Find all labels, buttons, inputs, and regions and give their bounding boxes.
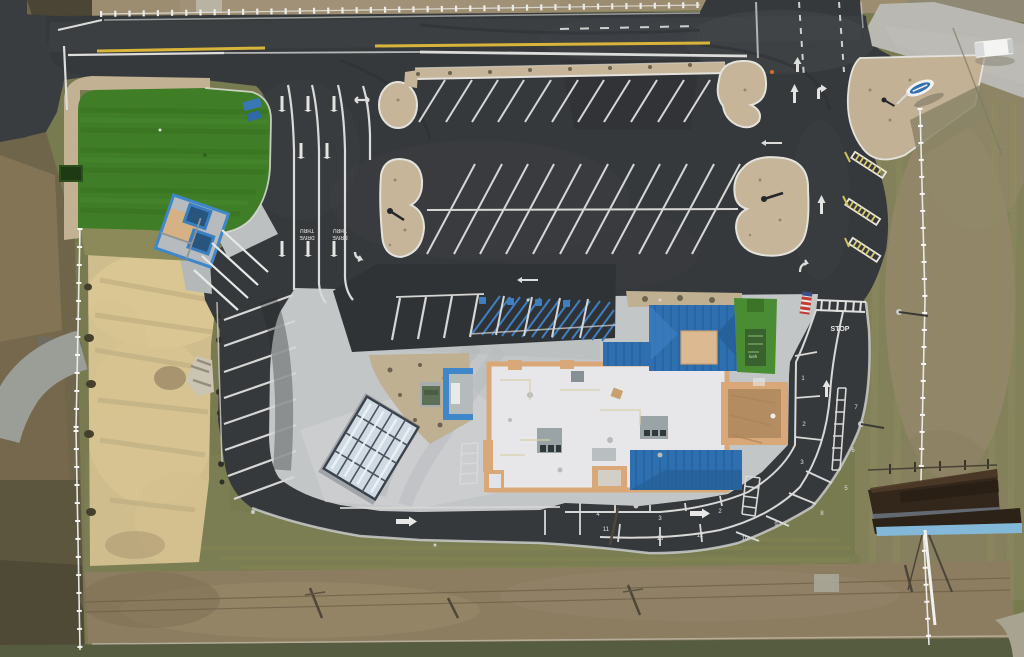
svg-text:10: 10 (742, 536, 749, 542)
svg-text:11: 11 (603, 527, 610, 533)
svg-text:DRIVE: DRIVE (332, 234, 348, 240)
svg-text:13: 13 (657, 536, 664, 542)
svg-text:12: 12 (697, 533, 704, 539)
svg-text:lush: lush (749, 354, 758, 359)
svg-text:THRU: THRU (300, 227, 314, 233)
svg-text:DRIVE: DRIVE (299, 234, 315, 240)
svg-text:STOP: STOP (831, 326, 850, 333)
svg-text:THRU: THRU (333, 227, 347, 233)
